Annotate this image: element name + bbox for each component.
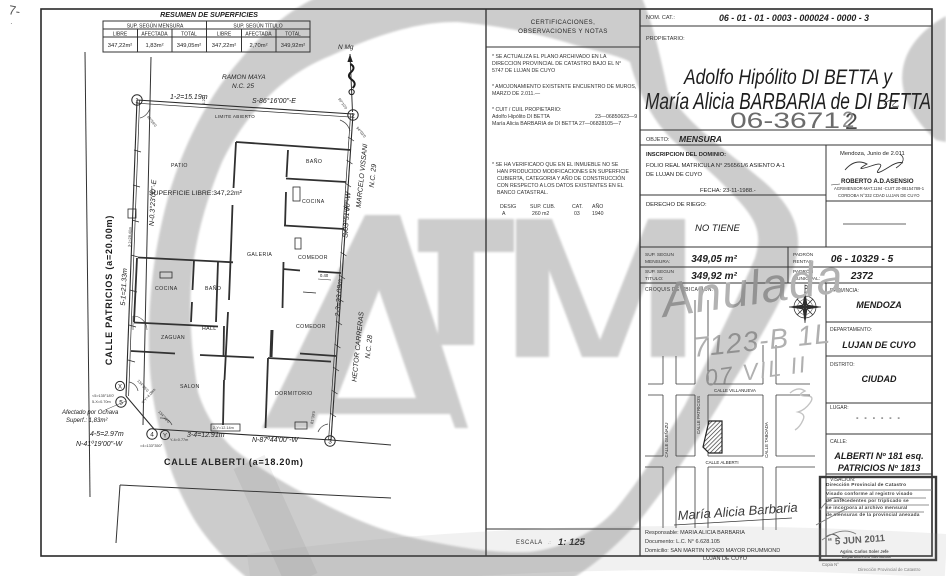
svg-text:SUP. CUB.: SUP. CUB. — [530, 204, 555, 210]
svg-text:PATRICIOS Nº 1813: PATRICIOS Nº 1813 — [838, 463, 920, 473]
svg-text:MARZO DE 2.011.—: MARZO DE 2.011.— — [492, 91, 541, 97]
svg-text:=4=133°350°: =4=133°350° — [140, 444, 163, 448]
svg-text:SUP. SEGÚN MENSURA: SUP. SEGÚN MENSURA — [127, 23, 184, 30]
svg-text:0.40: 0.40 — [320, 273, 329, 278]
svg-text:N-87º44'00"-W: N-87º44'00"-W — [252, 437, 299, 444]
svg-text:AÑO: AÑO — [592, 203, 603, 210]
svg-text:1: 1 — [135, 98, 139, 105]
svg-text:2372: 2372 — [850, 271, 874, 282]
svg-text:* SE HA VERIFICADO QUE EN: * SE HA VERIFICADO QUE EN EL INMUEBLE NO… — [492, 162, 619, 168]
svg-text:349,05m²: 349,05m² — [177, 43, 202, 49]
svg-text:NOM. CAT.:: NOM. CAT.: — [646, 15, 675, 21]
svg-text:DISTRITO:: DISTRITO: — [830, 362, 855, 368]
svg-text:2: 2 — [842, 107, 854, 132]
svg-text:DERECHO DE RIEGO:: DERECHO DE RIEGO: — [646, 202, 707, 208]
svg-text:Adolfo Hipólito DI BETTA: Adolfo Hipólito DI BETTA — [492, 114, 550, 120]
svg-text:<5>135°18'0': <5>135°18'0' — [92, 394, 114, 398]
svg-text:CALLE PATRICIOS (a=20.00m): CALLE PATRICIOS (a=20.00m) — [104, 215, 114, 365]
svg-text:MENDOZA: MENDOZA — [856, 300, 902, 310]
svg-text:03: 03 — [574, 211, 580, 217]
svg-text:AFECTADA: AFECTADA — [141, 32, 168, 38]
svg-text:2: 2 — [351, 113, 355, 120]
svg-text:DESIG: DESIG — [500, 204, 516, 210]
svg-text:1,83m²: 1,83m² — [145, 43, 163, 49]
svg-text:CALLE TABOADA: CALLE TABOADA — [764, 422, 769, 458]
svg-text:* AMOJONAMIENTO EXISTENTE EN: * AMOJONAMIENTO EXISTENTE ENCUENTRO DE M… — [492, 84, 636, 90]
svg-text:5.20: 5.20 — [202, 97, 206, 105]
svg-text:260 m2: 260 m2 — [532, 211, 549, 217]
svg-text:ROBERTO A.D.ASENSIO: ROBERTO A.D.ASENSIO — [841, 178, 914, 185]
svg-text:LIBRE: LIBRE — [113, 32, 128, 38]
svg-text:BAÑO: BAÑO — [205, 285, 221, 292]
svg-text:DE LUJAN DE CUYO: DE LUJAN DE CUYO — [646, 172, 703, 178]
svg-text:3: 3 — [328, 439, 332, 446]
svg-text:5747 DE LUJAN DE CUYO: 5747 DE LUJAN DE CUYO — [492, 68, 555, 74]
svg-text:CORDOBA N°332 CDAD LUJAN D: CORDOBA N°332 CDAD LUJAN DE CUYO — [838, 193, 920, 198]
svg-text:BANCO CATASTRAL.: BANCO CATASTRAL. — [497, 190, 548, 196]
svg-text:Visado conforme al registro: Visado conforme al registro visado — [826, 491, 913, 497]
svg-text:* CUIT / CUIL PROPIETARIO:: * CUIT / CUIL PROPIETARIO: — [492, 107, 561, 113]
svg-text:1940: 1940 — [592, 211, 604, 217]
svg-text:A: A — [502, 211, 506, 217]
svg-text:LIBRE: LIBRE — [217, 32, 232, 38]
svg-text:- - - - - -: - - - - - - — [856, 415, 902, 422]
svg-text:RESUMEN DE SUPERFICIES: RESUMEN DE SUPERFICIES — [160, 10, 258, 19]
svg-text:347,22m²: 347,22m² — [108, 43, 133, 49]
svg-text:347,22m²: 347,22m² — [212, 43, 237, 49]
svg-text:LUGAR:: LUGAR: — [830, 405, 849, 411]
svg-text:DIRECCION PROVINCIAL DE CAT: DIRECCION PROVINCIAL DE CATASTRO BAJO EL… — [492, 61, 621, 67]
svg-text:06 - 01 - 01 - 0003 - 000024 -: 06 - 01 - 01 - 0003 - 000024 - 0000 - 3 — [719, 13, 870, 24]
svg-text:ALBERTI Nº 181 esq.: ALBERTI Nº 181 esq. — [833, 451, 923, 461]
svg-text:CUBIERTA, CATEGORIA Y AÑO: CUBIERTA, CATEGORIA Y AÑO DE CONSTRUCCIÓ… — [497, 175, 625, 182]
svg-text:Dirección Provincial de Cat: Dirección Provincial de Catastro — [826, 482, 906, 488]
svg-text:COCINA: COCINA — [302, 199, 325, 205]
svg-text:CALLE:: CALLE: — [830, 439, 847, 445]
svg-text:CON RESPECTO A LOS DATOS: CON RESPECTO A LOS DATOS EXISTENTES EN E… — [497, 183, 624, 189]
svg-text:4: 4 — [150, 432, 154, 439]
svg-text:5-X=0.70m: 5-X=0.70m — [92, 400, 111, 404]
svg-text:Superf.: 1,83m²: Superf.: 1,83m² — [66, 418, 108, 424]
svg-text:GALERIA: GALERIA — [247, 252, 272, 258]
svg-text:Adolfo Hipólito DI BETTA y: Adolfo Hipólito DI BETTA y — [682, 65, 893, 89]
svg-text:4-5=2.97m: 4-5=2.97m — [90, 431, 124, 438]
svg-text:Afectado por Ochava: Afectado por Ochava — [61, 410, 119, 416]
svg-text:AGRIMENSOR-MAT.1194 -CUIT 20-: AGRIMENSOR-MAT.1194 -CUIT 20-08154789-1 — [834, 186, 925, 191]
svg-text:CAT.: CAT. — [572, 204, 583, 210]
svg-text:HALL: HALL — [202, 326, 217, 332]
svg-text:María Alicia BARBARIA de DI BE: María Alicia BARBARIA de DI BETTA 27—068… — [492, 121, 621, 127]
svg-text:Mendoza, Junio de 2.011: Mendoza, Junio de 2.011 — [840, 151, 905, 157]
svg-text:NO TIENE: NO TIENE — [695, 223, 741, 234]
svg-text:349,05 m²: 349,05 m² — [691, 254, 737, 265]
svg-text:OBJETO:: OBJETO: — [646, 137, 670, 143]
svg-text:LUJAN DE CUYO: LUJAN DE CUYO — [842, 340, 916, 350]
svg-text:·: · — [10, 19, 13, 28]
svg-text:TOTAL: TOTAL — [181, 32, 197, 38]
svg-text:06-3671: 06-3671 — [730, 108, 840, 133]
svg-text:CIUDAD: CIUDAD — [862, 374, 897, 384]
svg-text:N-41º19'00"-W: N-41º19'00"-W — [76, 441, 123, 448]
svg-text:BAÑO: BAÑO — [306, 158, 322, 165]
svg-text:CALLE ALBERTI: CALLE ALBERTI — [705, 460, 738, 465]
svg-text:X: X — [118, 384, 122, 390]
svg-text:HAN PRODUCIDO MODIFICACIONES: HAN PRODUCIDO MODIFICACIONES EN SUPERFIC… — [497, 169, 630, 175]
svg-text:DEPARTAMENTO:: DEPARTAMENTO: — [830, 327, 872, 333]
svg-text:* SE ACTUALIZA EL PLANO AR: * SE ACTUALIZA EL PLANO ARCHIVADO EN LA — [492, 54, 607, 60]
svg-text:23—06850623—9: 23—06850623—9 — [595, 114, 637, 120]
svg-text:COMEDOR: COMEDOR — [298, 255, 328, 261]
